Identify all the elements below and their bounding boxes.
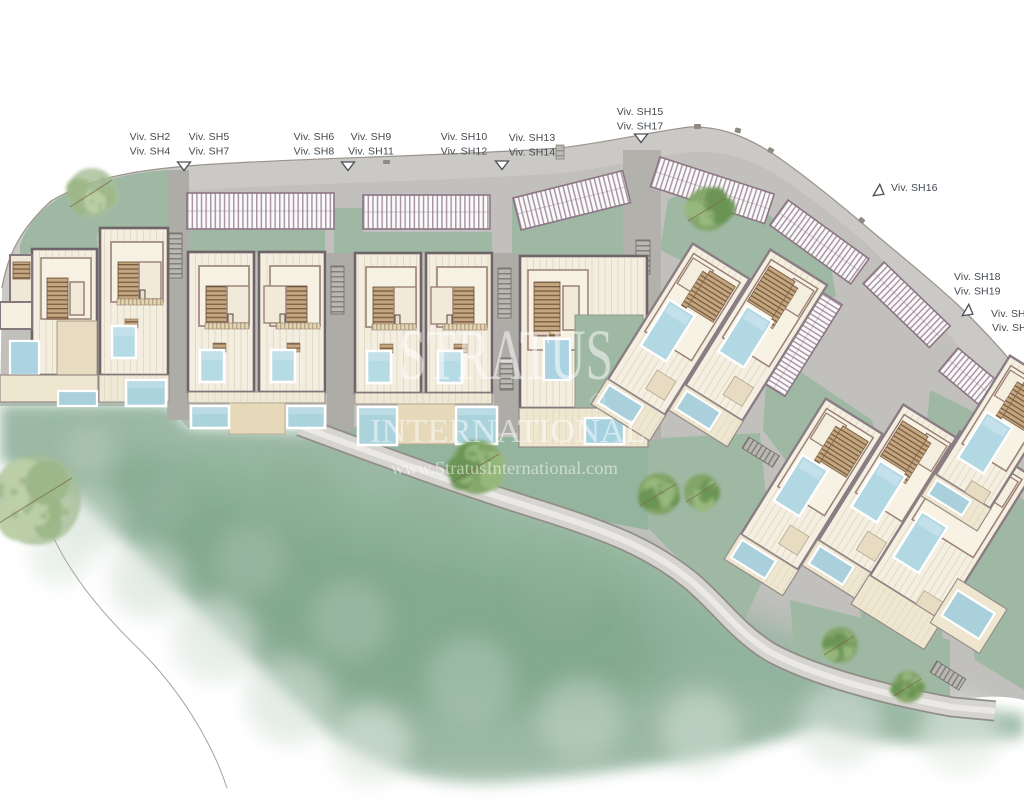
svg-text:Viv. SH13: Viv. SH13 <box>509 132 556 144</box>
svg-text:www.StratusInternational.com: www.StratusInternational.com <box>391 458 618 478</box>
svg-text:Viv. SH17: Viv. SH17 <box>617 121 664 133</box>
svg-text:Viv. SH8: Viv. SH8 <box>294 146 335 158</box>
svg-text:Viv. SH7: Viv. SH7 <box>189 146 230 158</box>
svg-text:Viv. SH19: Viv. SH19 <box>954 286 1001 298</box>
svg-text:INTERNATIONAL: INTERNATIONAL <box>370 413 646 450</box>
svg-text:Viv. SH16: Viv. SH16 <box>891 182 938 194</box>
svg-text:STRATUS: STRATUS <box>399 315 613 395</box>
svg-text:Viv. SH21: Viv. SH21 <box>992 322 1024 334</box>
svg-text:Viv. SH6: Viv. SH6 <box>294 131 335 143</box>
svg-text:Viv. SH2: Viv. SH2 <box>130 131 171 143</box>
svg-text:Viv. SH18: Viv. SH18 <box>954 271 1001 283</box>
svg-text:Viv. SH5: Viv. SH5 <box>189 131 230 143</box>
svg-text:Viv. SH10: Viv. SH10 <box>441 131 488 143</box>
svg-text:Viv. SH14: Viv. SH14 <box>509 147 556 159</box>
svg-text:Viv. SH20: Viv. SH20 <box>991 308 1024 320</box>
svg-text:Viv. SH9: Viv. SH9 <box>351 131 392 143</box>
svg-text:Viv. SH4: Viv. SH4 <box>130 146 171 158</box>
svg-text:Viv. SH15: Viv. SH15 <box>617 106 664 118</box>
svg-text:Viv. SH11: Viv. SH11 <box>348 146 394 158</box>
svg-text:Viv. SH12: Viv. SH12 <box>441 146 488 158</box>
